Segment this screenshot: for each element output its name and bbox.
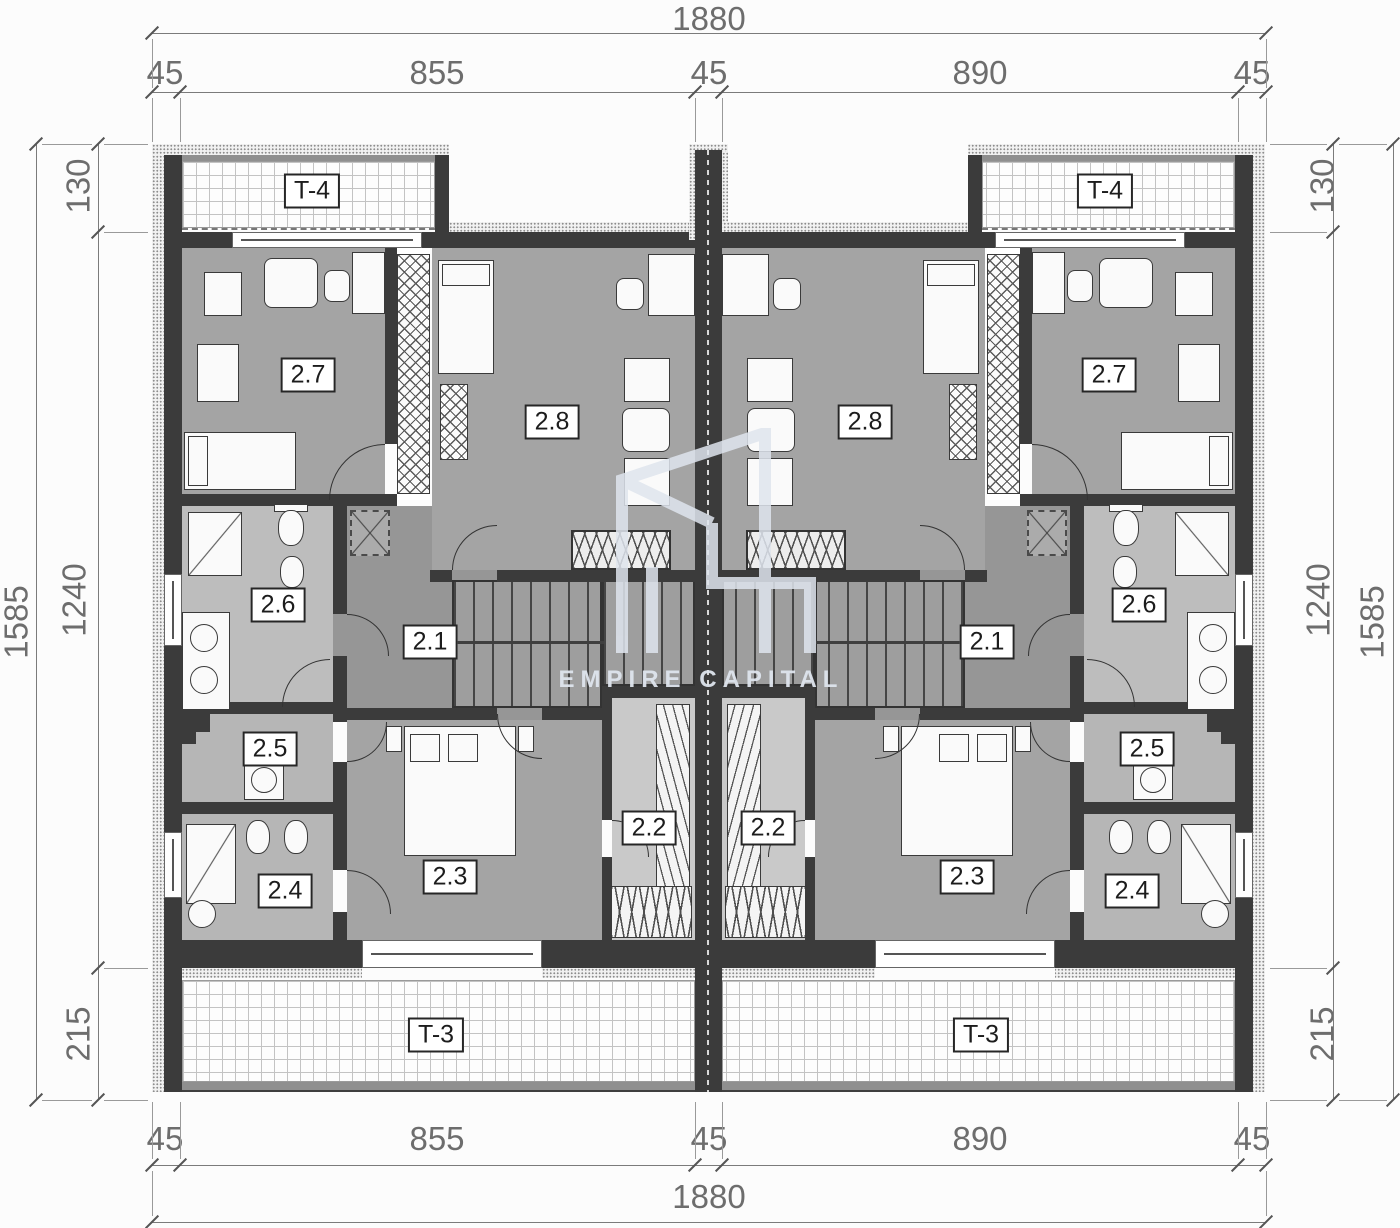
extension-line xyxy=(695,1102,696,1159)
wall-segment xyxy=(182,714,210,732)
terrace-label-t3: T-3 xyxy=(953,1018,1009,1053)
terrace-railing xyxy=(182,1082,695,1090)
dimension-line xyxy=(98,144,99,1100)
pillow-symbol xyxy=(448,734,478,762)
extension-line xyxy=(1270,1100,1327,1101)
wall-segment xyxy=(1070,506,1084,614)
room-label-2-2: 2.2 xyxy=(741,811,796,846)
armchair-symbol xyxy=(622,408,670,452)
chair-symbol xyxy=(616,278,644,310)
wall-segment xyxy=(722,940,875,968)
dimension-line xyxy=(152,1222,1266,1223)
built-in-wardrobe-symbol xyxy=(397,254,430,494)
dim-left-seg-0: 130 xyxy=(62,158,95,213)
bidet-symbol xyxy=(1109,820,1133,854)
terrace-edge-line xyxy=(182,1090,695,1092)
wall-segment xyxy=(164,940,362,968)
insulation-hatch xyxy=(442,222,695,232)
wall-segment xyxy=(805,698,815,820)
dimension-line xyxy=(1333,144,1334,1100)
extension-line xyxy=(180,98,181,142)
wall-segment xyxy=(602,686,695,698)
extension-line xyxy=(104,232,148,233)
extension-line xyxy=(1339,144,1387,145)
extension-line xyxy=(1270,232,1327,233)
extension-line xyxy=(722,98,723,142)
extension-line xyxy=(1266,1171,1267,1216)
wall-segment xyxy=(805,708,875,720)
wall-segment xyxy=(333,762,347,870)
wall-segment xyxy=(920,708,1070,720)
extension-line xyxy=(722,1102,723,1159)
terrace-door-window xyxy=(995,232,1185,248)
dim-left-seg-1: 1240 xyxy=(58,563,91,636)
floor-plan-canvas: 1880 45 855 45 890 45 45 855 45 890 45 1… xyxy=(0,0,1400,1228)
table-symbol xyxy=(624,358,670,402)
extension-line xyxy=(152,1102,153,1159)
dimension-line xyxy=(152,33,1266,34)
desk-symbol xyxy=(722,254,769,316)
extension-line xyxy=(42,144,92,145)
table-symbol xyxy=(747,458,793,506)
extension-line xyxy=(1238,1102,1239,1159)
wall-segment xyxy=(497,570,695,582)
room-label-2-6: 2.6 xyxy=(251,588,306,623)
sink-symbol xyxy=(188,900,216,928)
extension-line xyxy=(1238,98,1239,142)
insulation-hatch xyxy=(1253,155,1265,1092)
insulation-hatch xyxy=(1055,968,1253,978)
insulation-hatch xyxy=(152,144,449,155)
armchair-symbol xyxy=(1099,258,1153,308)
insulation-hatch xyxy=(152,155,164,1092)
terrace-label-t3: T-3 xyxy=(408,1018,464,1053)
terrace-edge-line xyxy=(722,1090,1235,1092)
room-label-2-4: 2.4 xyxy=(1105,874,1160,909)
unit-right: T-4 2.7 2.8 2.6 2.1 2.5 2.4 2.3 2.2 T-3 xyxy=(722,144,1265,1097)
stair-handrail xyxy=(452,641,604,644)
wall-segment xyxy=(1070,802,1235,814)
armchair-symbol xyxy=(747,408,795,452)
sink-symbol xyxy=(190,624,218,652)
extension-line xyxy=(104,144,148,145)
room-label-2-1: 2.1 xyxy=(960,625,1015,660)
room-label-2-6: 2.6 xyxy=(1112,588,1167,623)
terrace-edge-dashed xyxy=(182,228,435,230)
bidet-symbol xyxy=(1113,556,1137,588)
wall-segment xyxy=(333,656,347,708)
cabinet-symbol xyxy=(1178,344,1220,402)
cabinet-symbol xyxy=(197,344,239,402)
terrace-label-t4: T-4 xyxy=(284,174,340,209)
pillow-symbol xyxy=(442,264,490,286)
pillow-symbol xyxy=(939,734,969,762)
extension-line xyxy=(104,968,148,969)
room-label-2-2: 2.2 xyxy=(622,811,677,846)
stair-handrail xyxy=(813,641,965,644)
extension-line xyxy=(695,98,696,142)
wall-segment xyxy=(385,248,397,444)
wall-segment xyxy=(1221,732,1235,744)
wall-segment xyxy=(965,570,987,582)
wall-segment xyxy=(182,732,196,744)
table-symbol xyxy=(624,458,670,506)
insulation-hatch xyxy=(968,144,1265,155)
wall-segment xyxy=(182,802,347,814)
sink-symbol xyxy=(1199,666,1227,694)
window xyxy=(1235,574,1253,646)
nightstand-symbol xyxy=(1015,726,1031,752)
wall-segment xyxy=(1207,714,1235,732)
extension-line xyxy=(152,39,153,88)
balcony-door-window xyxy=(875,940,1055,968)
dim-right-total: 1585 xyxy=(1356,585,1389,658)
sink-symbol xyxy=(190,666,218,694)
dim-top-seg-2: 45 xyxy=(691,56,728,89)
dim-bottom-seg-3: 890 xyxy=(952,1122,1007,1155)
desk-symbol xyxy=(352,252,385,314)
room-label-2-4: 2.4 xyxy=(258,874,313,909)
toilet-symbol xyxy=(278,510,304,546)
wall-segment xyxy=(602,857,612,940)
room-label-2-8: 2.8 xyxy=(525,405,580,440)
pillow-symbol xyxy=(927,264,975,286)
window xyxy=(164,832,182,898)
wall-segment xyxy=(722,686,815,698)
wall-segment xyxy=(722,570,920,582)
extension-line xyxy=(152,1171,153,1216)
wall-segment xyxy=(1070,762,1084,870)
wall-segment xyxy=(602,698,612,820)
dim-top-seg-4: 45 xyxy=(1234,56,1271,89)
washing-machine-drum xyxy=(1140,767,1166,793)
wall-segment xyxy=(722,232,995,248)
wall-segment xyxy=(1070,656,1084,708)
wall-segment xyxy=(430,570,452,582)
hall-closet-symbol xyxy=(746,530,846,570)
extension-line xyxy=(104,1100,148,1101)
sink-symbol xyxy=(1199,624,1227,652)
shower-symbol xyxy=(188,512,242,576)
dim-left-seg-2: 215 xyxy=(62,1006,95,1061)
extension-line xyxy=(1266,98,1267,142)
wall-segment xyxy=(542,940,695,968)
dim-bottom-seg-4: 45 xyxy=(1234,1122,1271,1155)
armchair-symbol xyxy=(264,258,318,308)
shaft-symbol xyxy=(1027,510,1067,556)
table-symbol xyxy=(747,358,793,402)
pillow-symbol xyxy=(977,734,1007,762)
toilet-symbol xyxy=(1147,820,1171,854)
extension-line xyxy=(152,98,153,142)
wall-segment xyxy=(805,857,815,940)
shower-symbol xyxy=(1181,824,1231,904)
dim-top-total: 1880 xyxy=(672,2,745,35)
balcony-door-window xyxy=(362,940,542,968)
room-label-2-5: 2.5 xyxy=(243,732,298,767)
built-in-wardrobe-symbol xyxy=(987,254,1020,494)
floor-plan-drawing: T-4 2.7 2.8 2.6 2.1 2.5 2.4 2.3 2.2 T-3 xyxy=(152,144,1266,1097)
unit-left: T-4 2.7 2.8 2.6 2.1 2.5 2.4 2.3 2.2 T-3 xyxy=(152,144,695,1097)
toilet-symbol xyxy=(246,820,270,854)
window xyxy=(1235,832,1253,898)
staircase xyxy=(602,580,695,686)
dimension-line xyxy=(36,144,37,1100)
extension-line xyxy=(42,1100,92,1101)
washing-machine-drum xyxy=(251,767,277,793)
wall-segment xyxy=(182,232,232,248)
room-label-2-7: 2.7 xyxy=(281,358,336,393)
dimension-line xyxy=(152,1165,1266,1166)
room-label-2-3: 2.3 xyxy=(423,860,478,895)
shaft-symbol xyxy=(350,510,390,556)
bidet-symbol xyxy=(284,820,308,854)
dim-left-total: 1585 xyxy=(0,585,33,658)
staircase xyxy=(815,580,965,708)
desk-symbol xyxy=(648,254,695,316)
nightstand-symbol xyxy=(386,726,402,752)
window xyxy=(164,574,182,646)
chair-symbol xyxy=(204,272,242,316)
terrace-edge-dashed xyxy=(982,228,1235,230)
insulation-hatch xyxy=(164,968,362,978)
shower-symbol xyxy=(186,824,236,904)
wall-segment xyxy=(333,506,347,614)
extension-line xyxy=(1339,1100,1387,1101)
insulation-hatch xyxy=(722,968,875,978)
extension-line xyxy=(1266,39,1267,88)
sink-symbol xyxy=(1201,900,1229,928)
chair-symbol xyxy=(1175,272,1213,316)
wall-segment xyxy=(1020,248,1032,444)
room-label-2-1: 2.1 xyxy=(403,625,458,660)
wall-segment xyxy=(1070,714,1084,722)
extension-line xyxy=(1270,968,1327,969)
wall-segment xyxy=(1055,940,1253,968)
dim-right-seg-1: 1240 xyxy=(1302,563,1335,636)
terrace-label-t4: T-4 xyxy=(1077,174,1133,209)
terrace-door-window xyxy=(232,232,422,248)
pillow-symbol xyxy=(410,734,440,762)
desk-symbol xyxy=(1032,252,1065,314)
terrace-railing xyxy=(722,1082,1235,1090)
wall-segment xyxy=(347,708,497,720)
wall-segment xyxy=(333,912,347,940)
chair-symbol xyxy=(1067,270,1093,302)
dim-bottom-seg-1: 855 xyxy=(409,1122,464,1155)
chair-symbol xyxy=(324,270,350,302)
hall-closet-symbol xyxy=(571,530,671,570)
room-label-2-7: 2.7 xyxy=(1082,358,1137,393)
insulation-hatch xyxy=(722,222,975,232)
extension-line xyxy=(180,1102,181,1159)
wall-segment xyxy=(1070,912,1084,940)
room-label-2-8: 2.8 xyxy=(838,405,893,440)
staircase xyxy=(452,580,602,708)
extension-line xyxy=(1270,144,1327,145)
shower-symbol xyxy=(1175,512,1229,576)
toilet-symbol xyxy=(1113,510,1139,546)
wall-segment xyxy=(422,232,695,248)
staircase xyxy=(722,580,815,686)
bidet-symbol xyxy=(280,556,304,588)
insulation-hatch xyxy=(542,968,695,978)
wardrobe-shelf-symbol xyxy=(610,886,692,938)
room-label-2-5: 2.5 xyxy=(1120,732,1175,767)
wardrobe-symbol xyxy=(949,384,977,460)
dim-top-seg-1: 855 xyxy=(409,56,464,89)
wardrobe-symbol xyxy=(440,384,468,460)
party-wall-joint xyxy=(707,150,709,1092)
room-label-2-3: 2.3 xyxy=(940,860,995,895)
wardrobe-shelf-symbol xyxy=(725,886,807,938)
extension-line xyxy=(1266,1102,1267,1159)
wall-segment xyxy=(1185,232,1235,248)
pillow-symbol xyxy=(188,436,208,486)
pillow-symbol xyxy=(1209,436,1229,486)
dimension-line xyxy=(1393,144,1394,1100)
chair-symbol xyxy=(773,278,801,310)
dimension-line xyxy=(152,92,1266,93)
wall-segment xyxy=(333,714,347,722)
dim-bottom-total: 1880 xyxy=(672,1180,745,1213)
dim-top-seg-3: 890 xyxy=(952,56,1007,89)
